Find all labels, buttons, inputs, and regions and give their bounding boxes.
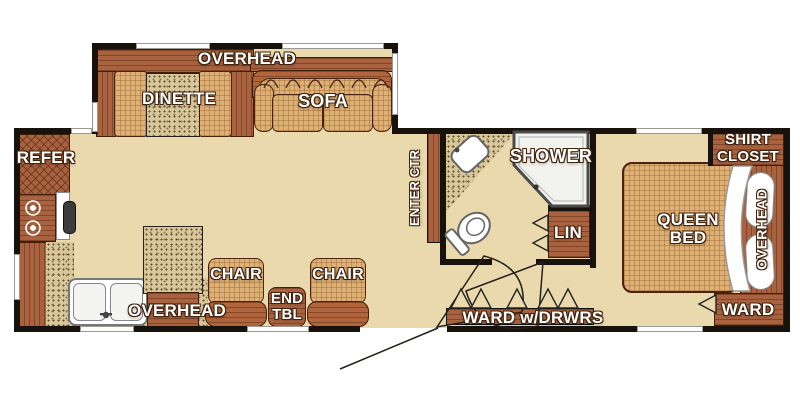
- window: [247, 326, 309, 332]
- window: [80, 326, 134, 332]
- refer-label: REFER: [4, 149, 88, 167]
- range-stove: [18, 194, 56, 242]
- floor-plan: OVERHEAD DINETTE SOFA REFER OVERHEAD CHA…: [0, 0, 800, 400]
- window: [636, 128, 702, 134]
- window: [637, 326, 703, 332]
- shirt-closet-label-line1: SHIRT: [710, 132, 786, 148]
- overhead-label: OVERHEAD: [177, 50, 317, 68]
- entry-door-leader-line: [340, 328, 438, 369]
- chair-left-label: CHAIR: [206, 267, 266, 284]
- end-table-label-line2: TBL: [268, 307, 306, 323]
- shower-label: SHOWER: [486, 147, 616, 166]
- dinette-label: DINETTE: [119, 90, 239, 108]
- kitchen-overhead-label: OVERHEAD: [117, 302, 237, 320]
- queen-bed-label-line2: BED: [648, 229, 728, 247]
- window: [92, 102, 98, 132]
- wardrobe-drawers-label: WARD w/DRWRS: [443, 309, 623, 327]
- kitchen-sink-basin: [73, 283, 106, 321]
- queen-bed-label-line1: QUEEN: [648, 211, 728, 229]
- window: [392, 53, 398, 115]
- kitchen-counter-left: [18, 242, 48, 328]
- wall-bath-bottom-right: [536, 259, 596, 265]
- sofa-arm-right: [372, 84, 392, 132]
- chair-right-back: [307, 301, 369, 327]
- chair-right-label: CHAIR: [308, 267, 368, 284]
- dinette-back-left: [96, 71, 116, 137]
- window: [71, 128, 92, 134]
- wall-bath-bottom-left: [440, 259, 492, 265]
- wall-bath-left: [440, 132, 446, 265]
- bedroom-ward-label: WARD: [708, 301, 788, 319]
- end-table-label-line1: END: [268, 291, 306, 307]
- window: [282, 43, 384, 49]
- shirt-closet-label-line2: CLOSET: [710, 149, 786, 165]
- linen-label: LIN: [538, 224, 598, 242]
- sofa-label: SOFA: [273, 92, 373, 111]
- kitchen-island: [143, 226, 203, 294]
- window: [14, 254, 20, 300]
- sofa-arm-left: [254, 84, 274, 132]
- oven-handle: [63, 201, 76, 234]
- entertainment-center-label: ENTER CTR: [408, 132, 422, 244]
- bedroom-overhead-label: OVERHEAD: [755, 171, 770, 287]
- linen-closet-wall-edge: [548, 205, 590, 211]
